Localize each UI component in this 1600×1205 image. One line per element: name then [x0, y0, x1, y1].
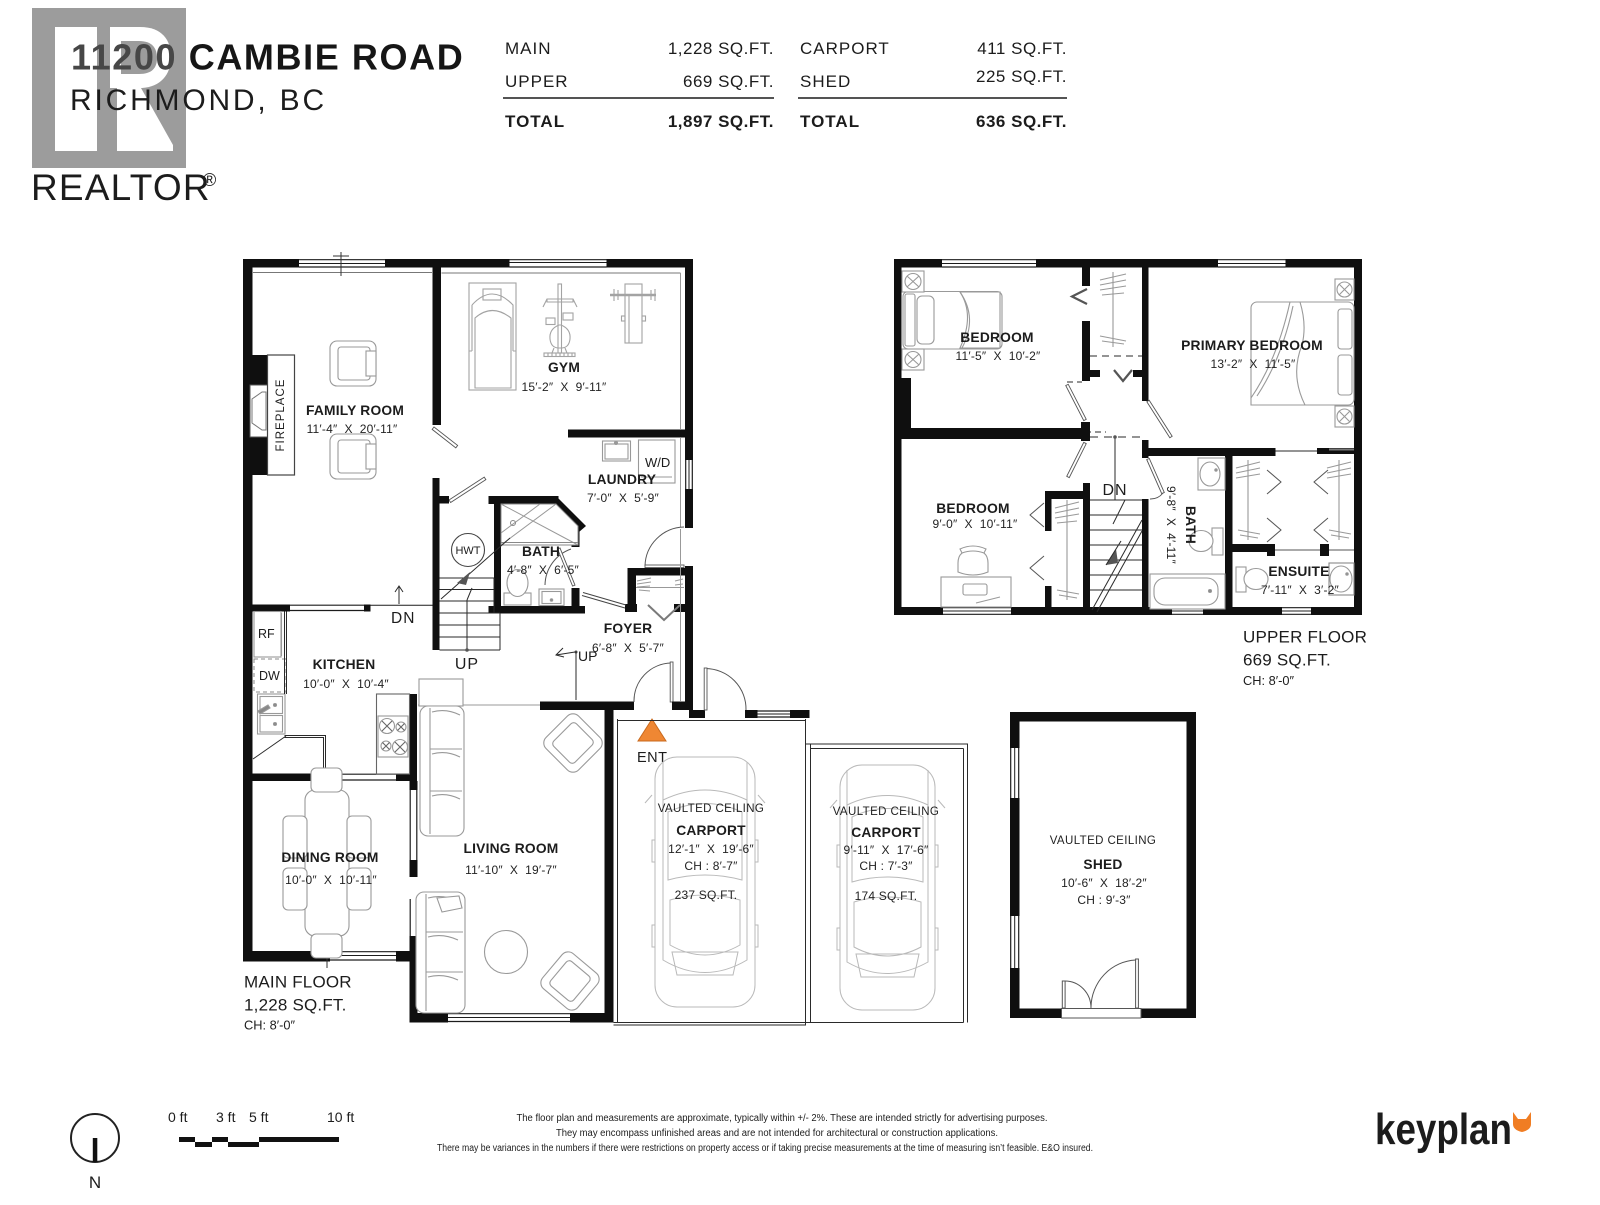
svg-text:BEDROOM: BEDROOM	[960, 330, 1033, 345]
svg-text:11′-4″ X 20′-11″: 11′-4″ X 20′-11″	[307, 422, 398, 436]
svg-text:GYM: GYM	[548, 360, 580, 375]
svg-text:VAULTED CEILING: VAULTED CEILING	[658, 803, 765, 815]
svg-text:W/D: W/D	[645, 455, 670, 470]
svg-text:CH : 7′-3″: CH : 7′-3″	[859, 859, 913, 873]
svg-text:7′-11″ X 3′-2″: 7′-11″ X 3′-2″	[1261, 583, 1340, 597]
svg-text:BEDROOM: BEDROOM	[936, 501, 1009, 516]
svg-text:CH: 8′-0″: CH: 8′-0″	[1243, 673, 1294, 688]
svg-text:The floor plan and measurement: The floor plan and measurements are appr…	[517, 1113, 1048, 1124]
svg-text:669 SQ.FT.: 669 SQ.FT.	[1243, 651, 1331, 670]
svg-text:UP: UP	[578, 648, 597, 664]
svg-text:9′-8″ X 4′-11″: 9′-8″ X 4′-11″	[1164, 486, 1178, 565]
svg-text:11′-5″ X 10′-2″: 11′-5″ X 10′-2″	[956, 349, 1041, 363]
svg-text:636 SQ.FT.: 636 SQ.FT.	[976, 112, 1067, 131]
svg-text:VAULTED CEILING: VAULTED CEILING	[1050, 835, 1157, 847]
svg-text:FIREPLACE: FIREPLACE	[275, 379, 287, 452]
svg-text:TOTAL: TOTAL	[800, 112, 860, 131]
svg-text:BATH: BATH	[522, 544, 560, 559]
svg-text:PRIMARY BEDROOM: PRIMARY BEDROOM	[1181, 338, 1323, 353]
svg-text:CH: 8′-0″: CH: 8′-0″	[244, 1018, 295, 1033]
svg-text:CH : 8′-7″: CH : 8′-7″	[684, 859, 738, 873]
svg-text:CH : 9′-3″: CH : 9′-3″	[1077, 893, 1131, 907]
svg-text:10′-0″ X 10′-11″: 10′-0″ X 10′-11″	[285, 873, 377, 887]
svg-text:MAIN FLOOR: MAIN FLOOR	[244, 973, 352, 992]
svg-text:DW: DW	[259, 669, 280, 683]
svg-text:237 SQ.FT.: 237 SQ.FT.	[675, 888, 738, 902]
svg-text:669 SQ.FT.: 669 SQ.FT.	[683, 72, 774, 91]
svg-text:1,228 SQ.FT.: 1,228 SQ.FT.	[244, 996, 347, 1015]
svg-text:MAIN: MAIN	[505, 39, 552, 58]
svg-text:LIVING ROOM: LIVING ROOM	[464, 841, 559, 856]
svg-text:UPPER FLOOR: UPPER FLOOR	[1243, 628, 1367, 647]
svg-text:10′-6″ X 18′-2″: 10′-6″ X 18′-2″	[1061, 876, 1147, 890]
svg-text:13′-2″ X 11′-5″: 13′-2″ X 11′-5″	[1211, 357, 1296, 371]
svg-text:1,228 SQ.FT.: 1,228 SQ.FT.	[668, 39, 774, 58]
svg-text:CARPORT: CARPORT	[676, 823, 746, 838]
svg-text:SHED: SHED	[800, 72, 851, 91]
svg-text:HWT: HWT	[455, 545, 480, 557]
svg-text:TOTAL: TOTAL	[505, 112, 565, 131]
svg-text:9′-0″ X 10′-11″: 9′-0″ X 10′-11″	[933, 517, 1018, 531]
svg-text:9′-11″ X 17′-6″: 9′-11″ X 17′-6″	[844, 843, 929, 857]
svg-text:CARPORT: CARPORT	[800, 39, 890, 58]
svg-text:SHED: SHED	[1083, 857, 1122, 872]
svg-text:11′-10″ X 19′-7″: 11′-10″ X 19′-7″	[465, 863, 557, 877]
svg-text:6′-8″ X 5′-7″: 6′-8″ X 5′-7″	[592, 641, 665, 655]
svg-text:15′-2″ X 9′-11″: 15′-2″ X 9′-11″	[522, 380, 607, 394]
svg-text:There may be variances in the: There may be variances in the numbers if…	[437, 1143, 1093, 1154]
svg-text:DN: DN	[1102, 482, 1127, 499]
svg-text:CARPORT: CARPORT	[851, 825, 921, 840]
svg-text:10′-0″ X 10′-4″: 10′-0″ X 10′-4″	[303, 677, 389, 691]
svg-text:FOYER: FOYER	[604, 621, 653, 636]
svg-text:FAMILY ROOM: FAMILY ROOM	[306, 403, 404, 418]
svg-text:N: N	[89, 1173, 101, 1192]
svg-text:12′-1″ X 19′-6″: 12′-1″ X 19′-6″	[668, 842, 754, 856]
svg-text:7′-0″ X 5′-9″: 7′-0″ X 5′-9″	[587, 491, 660, 505]
svg-text:UPPER: UPPER	[505, 72, 569, 91]
svg-text:RF: RF	[258, 627, 275, 641]
svg-text:11200 CAMBIE ROAD: 11200 CAMBIE ROAD	[71, 37, 464, 78]
svg-text:VAULTED CEILING: VAULTED CEILING	[833, 806, 940, 818]
svg-text:10 ft: 10 ft	[327, 1109, 354, 1125]
svg-text:UP: UP	[455, 656, 479, 673]
svg-text:KITCHEN: KITCHEN	[313, 657, 376, 672]
svg-text:keyplan: keyplan	[1375, 1105, 1512, 1154]
svg-text:0 ft: 0 ft	[168, 1109, 188, 1125]
svg-text:They may encompass unfinished: They may encompass unfinished areas and …	[556, 1128, 998, 1139]
svg-text:REALTOR: REALTOR	[31, 167, 211, 208]
svg-text:®: ®	[203, 170, 216, 190]
svg-text:225 SQ.FT.: 225 SQ.FT.	[976, 67, 1067, 86]
svg-text:ENSUITE: ENSUITE	[1268, 564, 1329, 579]
svg-text:4′-8″ X 6′-5″: 4′-8″ X 6′-5″	[507, 563, 580, 577]
svg-text:RICHMOND, BC: RICHMOND, BC	[70, 84, 327, 117]
svg-text:DINING ROOM: DINING ROOM	[281, 850, 378, 865]
svg-text:174 SQ.FT.: 174 SQ.FT.	[855, 889, 918, 903]
svg-text:3 ft: 3 ft	[216, 1109, 236, 1125]
svg-text:1,897 SQ.FT.: 1,897 SQ.FT.	[668, 112, 774, 131]
svg-text:411 SQ.FT.: 411 SQ.FT.	[977, 39, 1067, 58]
svg-text:LAUNDRY: LAUNDRY	[588, 472, 656, 487]
svg-text:5 ft: 5 ft	[249, 1109, 269, 1125]
svg-text:DN: DN	[391, 610, 415, 627]
svg-text:BATH: BATH	[1183, 506, 1198, 544]
